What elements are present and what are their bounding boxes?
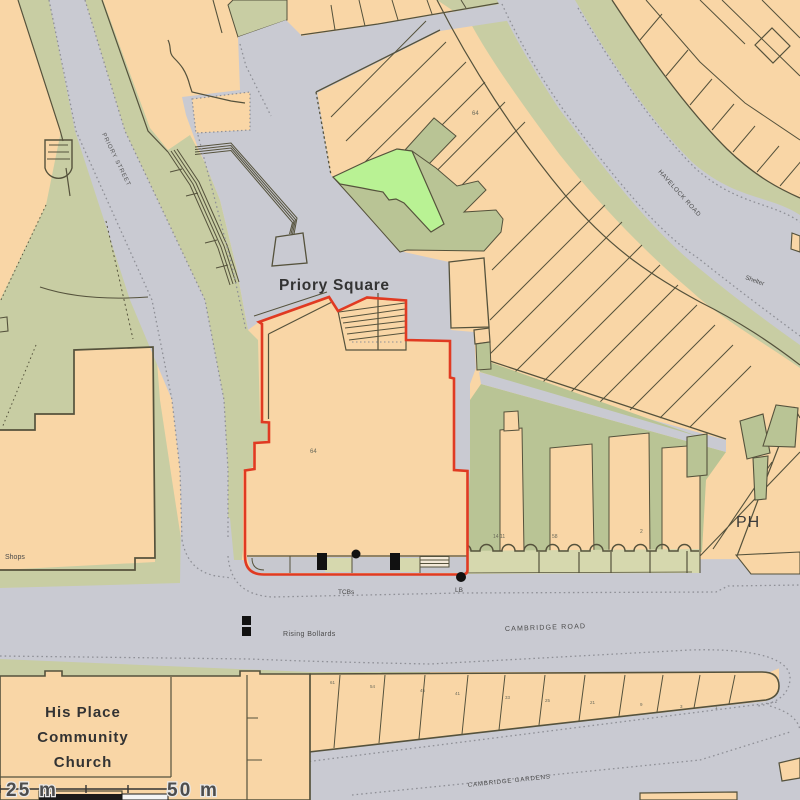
svg-text:41: 41 xyxy=(455,691,461,696)
svg-text:PH: PH xyxy=(736,514,760,531)
svg-text:His Place: His Place xyxy=(45,704,121,721)
svg-text:Shops: Shops xyxy=(5,554,25,561)
svg-text:25 m: 25 m xyxy=(6,780,58,800)
svg-text:54: 54 xyxy=(370,684,376,689)
svg-text:Church: Church xyxy=(54,754,113,771)
svg-text:Rising Bollards: Rising Bollards xyxy=(283,631,336,638)
svg-text:45: 45 xyxy=(420,688,426,693)
svg-text:14 11: 14 11 xyxy=(493,534,505,540)
svg-text:21: 21 xyxy=(590,700,596,705)
svg-text:61: 61 xyxy=(330,680,336,685)
svg-text:Priory Square: Priory Square xyxy=(279,277,390,294)
svg-text:2: 2 xyxy=(640,529,643,535)
svg-text:50 m: 50 m xyxy=(167,780,219,800)
svg-text:Community: Community xyxy=(37,729,129,746)
svg-text:LB: LB xyxy=(455,587,463,594)
svg-text:64: 64 xyxy=(472,111,479,117)
svg-text:25: 25 xyxy=(545,698,551,703)
svg-text:64: 64 xyxy=(310,449,317,455)
svg-text:TCBs: TCBs xyxy=(338,589,355,596)
svg-text:58: 58 xyxy=(552,534,558,540)
svg-text:33: 33 xyxy=(505,695,511,700)
